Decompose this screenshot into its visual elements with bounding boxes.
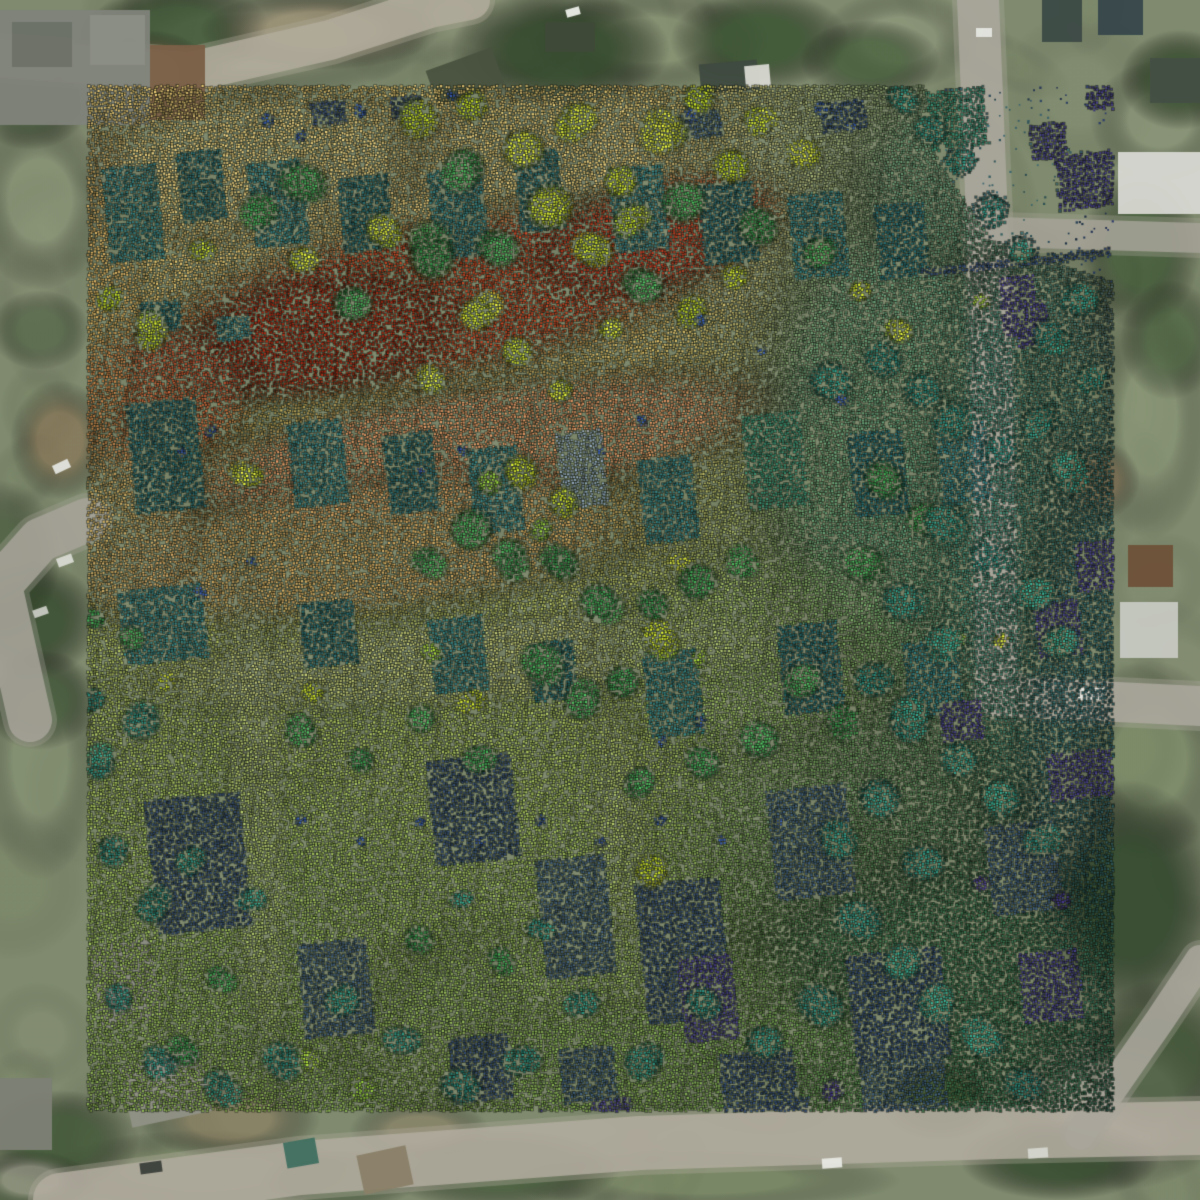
lidar-point-cloud-overlay	[0, 0, 1200, 1200]
lidar-aerial-map	[0, 0, 1200, 1200]
